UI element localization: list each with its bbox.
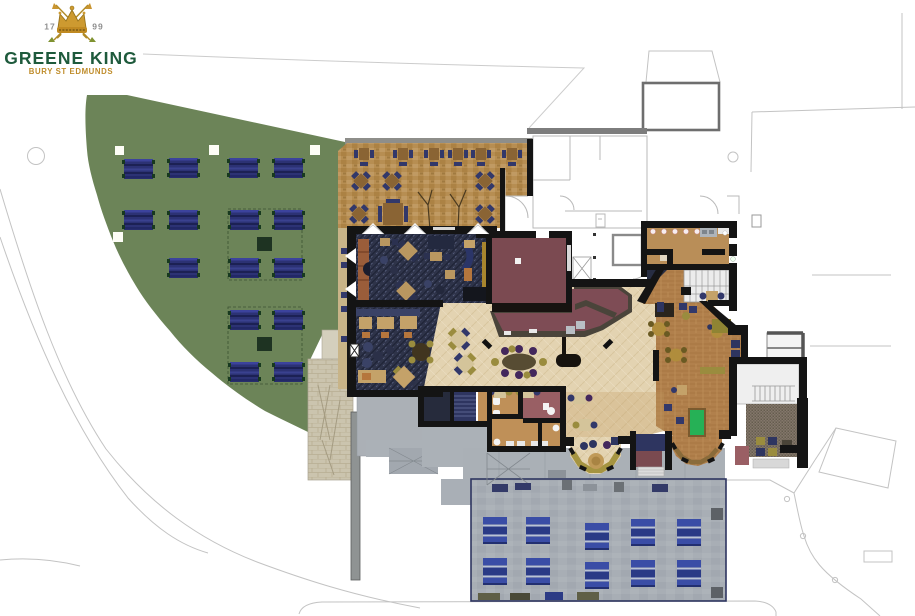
svg-text:BURY ST EDMUNDS: BURY ST EDMUNDS [29,67,113,76]
svg-text:99: 99 [92,22,103,32]
svg-text:GREENE KING: GREENE KING [4,48,138,68]
svg-text:17: 17 [44,22,55,32]
